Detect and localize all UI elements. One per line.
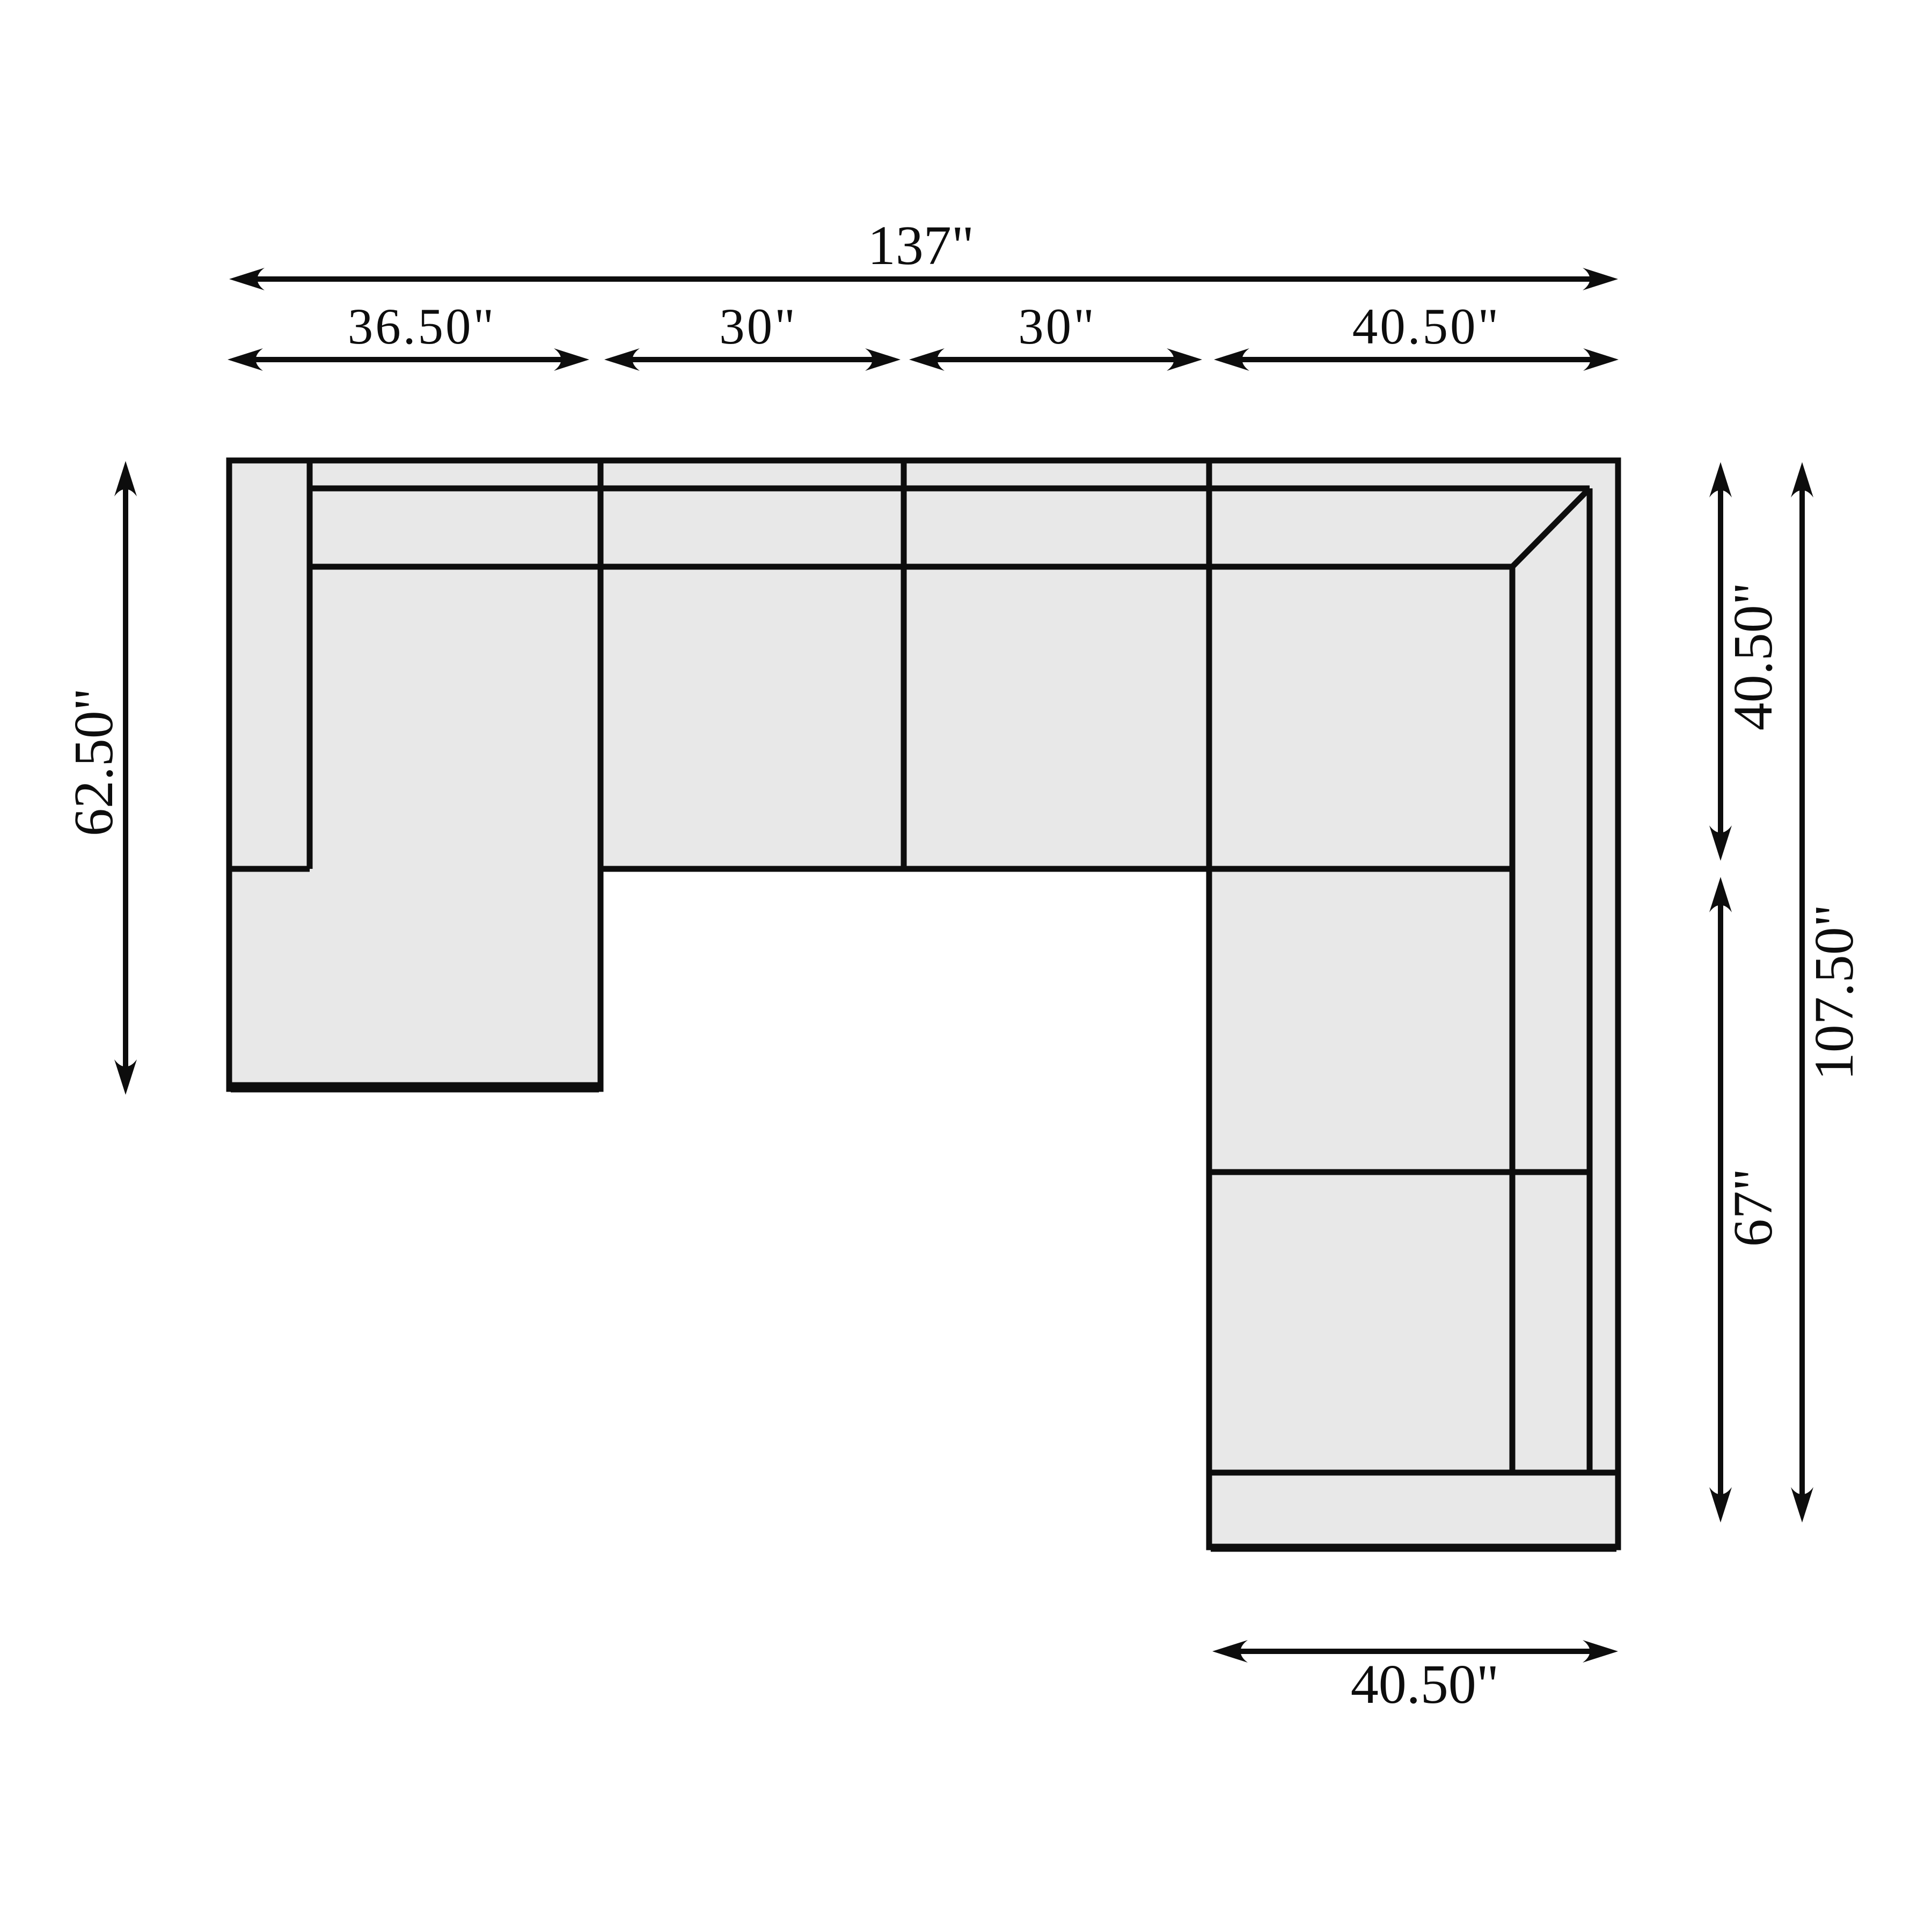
svg-text:30": 30" (719, 298, 797, 355)
svg-text:36.50": 36.50" (348, 298, 496, 355)
svg-text:67": 67" (1722, 1168, 1784, 1247)
svg-text:40.50": 40.50" (1351, 1653, 1499, 1715)
svg-text:137": 137" (868, 215, 974, 276)
svg-text:40.50": 40.50" (1352, 298, 1501, 355)
svg-text:62.50": 62.50" (63, 688, 125, 836)
svg-text:40.50": 40.50" (1722, 582, 1784, 730)
svg-text:107.50": 107.50" (1803, 904, 1865, 1080)
svg-text:30": 30" (1018, 298, 1096, 355)
